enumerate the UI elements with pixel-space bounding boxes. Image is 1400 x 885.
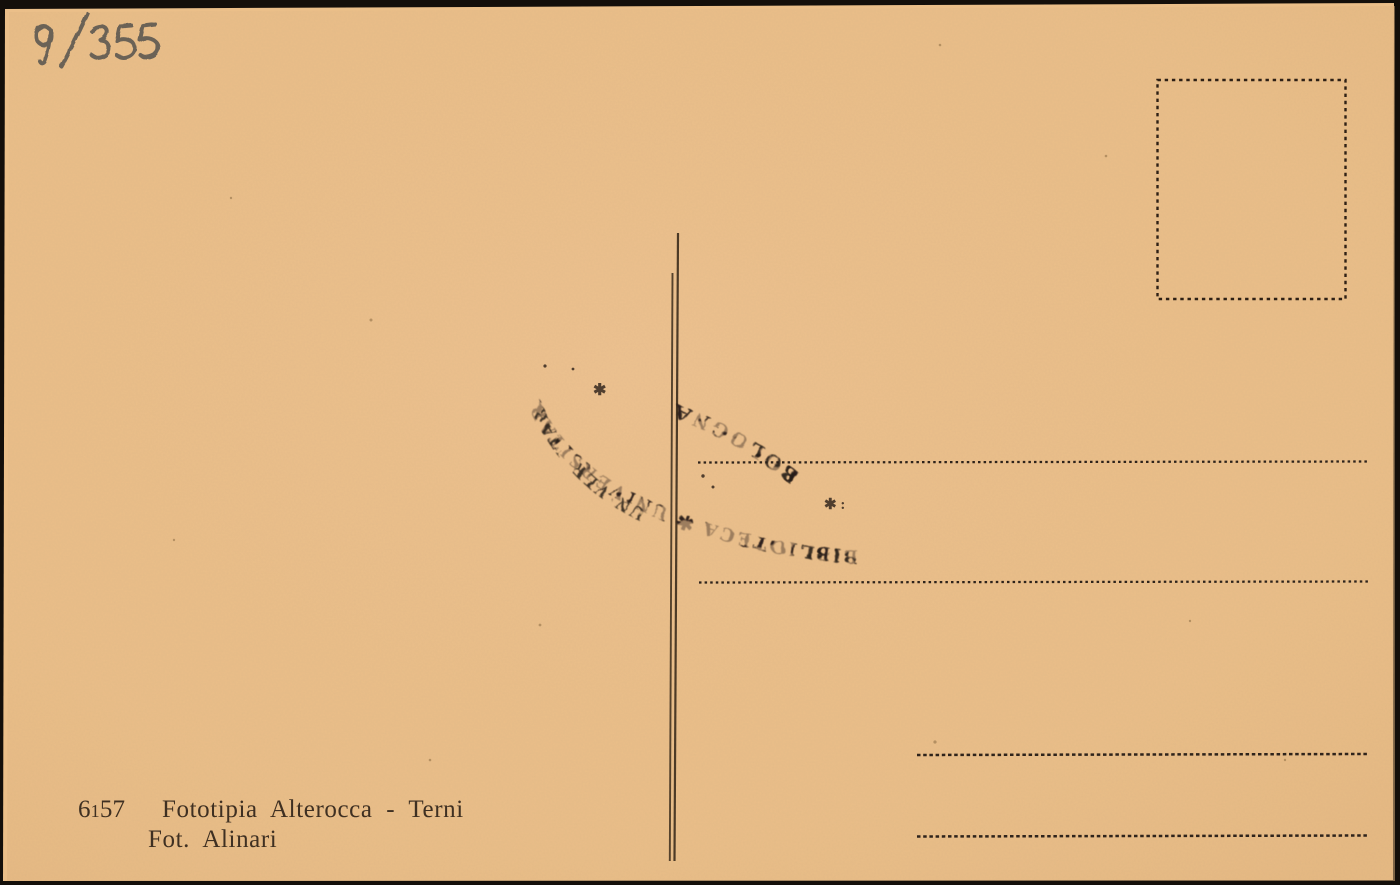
svg-text:✱ :: ✱ : [824, 497, 845, 513]
svg-text:✱: ✱ [593, 382, 606, 399]
